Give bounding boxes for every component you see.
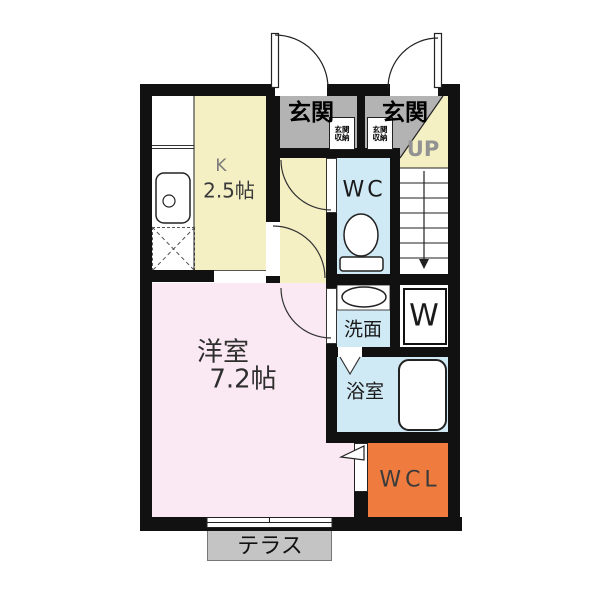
kitchen-size-label: 2.5帖 bbox=[203, 175, 255, 204]
entrance-right-door-leaf bbox=[435, 34, 442, 88]
entrance-left-door-leaf bbox=[272, 34, 279, 88]
wcl-label: WCL bbox=[379, 468, 440, 493]
bathroom-label: 浴室 bbox=[346, 377, 384, 404]
hall-door-swing bbox=[273, 226, 325, 278]
entrance-left-label: 玄関 bbox=[288, 93, 334, 127]
stairs-up-label: UP bbox=[407, 137, 439, 161]
washroom-label: 洗面 bbox=[344, 315, 382, 342]
washroom-door-swing bbox=[281, 288, 331, 338]
storage-label: 収納 bbox=[335, 134, 350, 142]
entrance-right-door-swing bbox=[388, 38, 438, 88]
wc-door-leaf bbox=[327, 159, 337, 213]
floor-plan: 玄関 収納 玄関 収納 玄関 玄関 K 2.5帖 WC UP 洗面 W 浴室 洋… bbox=[0, 0, 600, 600]
doors-layer bbox=[0, 0, 600, 600]
storage-label: 収納 bbox=[373, 134, 388, 142]
wc-label: WC bbox=[342, 178, 385, 203]
entrance-right-label: 玄関 bbox=[382, 93, 428, 127]
washroom-door-leaf bbox=[327, 289, 337, 344]
wc-door-swing bbox=[281, 160, 331, 210]
wcl-door-fold-icon bbox=[341, 446, 364, 460]
washer-label: W bbox=[409, 299, 439, 334]
kitchen-label: K bbox=[215, 156, 226, 176]
bathroom-folding-door-icon bbox=[340, 357, 360, 374]
terrace-label: テラス bbox=[237, 528, 303, 560]
entrance-left-door-swing bbox=[275, 35, 328, 88]
western-room-size-label: 7.2帖 bbox=[209, 359, 276, 396]
